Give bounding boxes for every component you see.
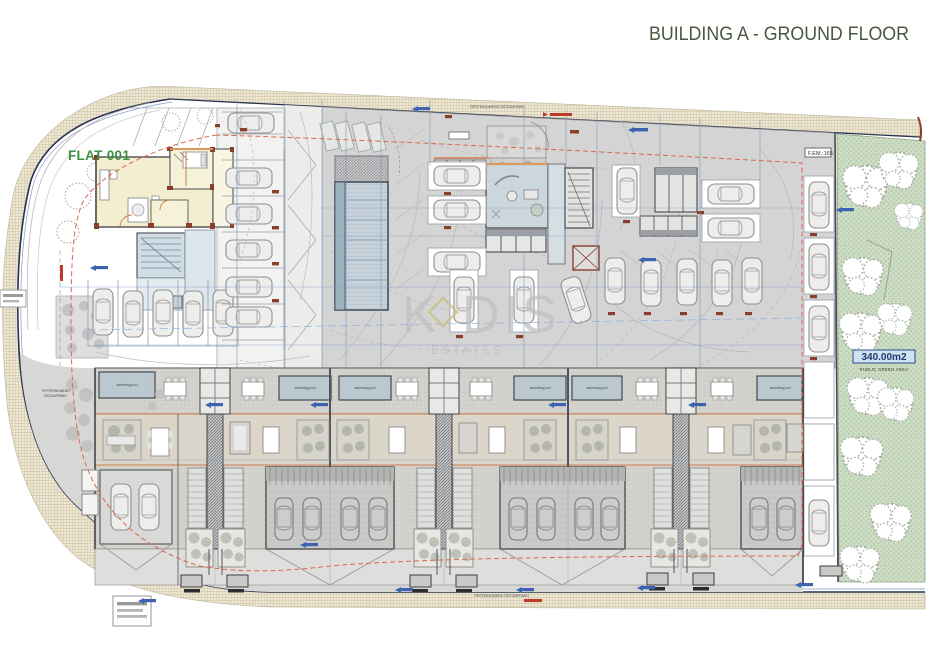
svg-text:swimming pool: swimming pool [354, 386, 375, 390]
svg-text:swimming pool: swimming pool [586, 386, 607, 390]
svg-text:K: K [402, 286, 440, 344]
svg-text:FLAT 001: FLAT 001 [68, 148, 130, 163]
svg-text:swimming pool: swimming pool [294, 386, 315, 390]
svg-text:swimming pool: swimming pool [529, 386, 550, 390]
svg-text:ΠΡΟΤΕΙΝΟΜΕΝΟ: ΠΡΟΤΕΙΝΟΜΕΝΟ [42, 389, 70, 393]
svg-text:swimming pool: swimming pool [116, 383, 137, 387]
svg-text:340.00m2: 340.00m2 [861, 352, 906, 363]
svg-text:ΠΡΟΤΕΙΝΟΜΕΝΟ ΠΕΖΟΔΡΟΜΙΟ: ΠΡΟΤΕΙΝΟΜΕΝΟ ΠΕΖΟΔΡΟΜΙΟ [470, 105, 525, 109]
svg-text:BUILDING A - GROUND FLOOR: BUILDING A - GROUND FLOOR [649, 24, 909, 45]
svg-text:DIS: DIS [462, 286, 561, 344]
svg-text:ΠΕΖΟΔΡΟΜΙΟ: ΠΕΖΟΔΡΟΜΙΟ [44, 394, 67, 398]
svg-text:ΠΡΟΤΕΙΝΟΜΕΝΟ ΠΕΖΟΔΡΟΜΙΟ: ΠΡΟΤΕΙΝΟΜΕΝΟ ΠΕΖΟΔΡΟΜΙΟ [474, 594, 529, 598]
svg-text:swimming pool: swimming pool [769, 386, 790, 390]
svg-text:F.EM.:165: F.EM.:165 [808, 151, 833, 157]
svg-text:ESTATES: ESTATES [431, 345, 504, 357]
svg-text:PUBLIC GREEN AREA: PUBLIC GREEN AREA [860, 367, 909, 372]
